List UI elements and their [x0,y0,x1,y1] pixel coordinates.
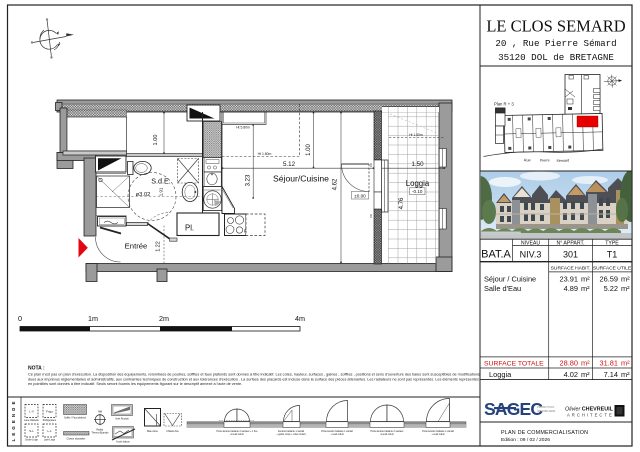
svg-text:PLAN DE COMMERCIALISATION: PLAN DE COMMERCIALISATION [501,430,588,436]
svg-text:Pl.: Pl. [185,224,194,233]
svg-text:-0.10: -0.10 [412,189,423,194]
svg-text:Sèche-Linge: Sèche-Linge [25,439,39,441]
svg-text:en pointillés sont donnés à ti: en pointillés sont donnés à titre indica… [28,382,242,386]
svg-text:F: F [244,229,247,234]
svg-text:Séjour/Cuisine: Séjour/Cuisine [273,174,329,184]
svg-text:T1: T1 [607,250,618,260]
svg-text:Porte-fenêtre battante 2 vanta: Porte-fenêtre battante 2 vantaux + 1 fix… [216,430,258,433]
svg-text:m²: m² [581,359,590,368]
svg-text:28.80: 28.80 [560,359,579,368]
svg-text:LE CLOS SEMARD: LE CLOS SEMARD [486,17,625,36]
svg-text:1m: 1m [88,314,98,323]
svg-text:à seuil réduit: à seuil réduit [380,433,393,436]
svg-text:Porte-fenêtre battante 1 vanta: Porte-fenêtre battante 1 vantail [422,430,454,433]
svg-text:1.22: 1.22 [156,241,162,252]
svg-text:Châssis fixe: Châssis fixe [166,431,179,433]
svg-text:Plan R + 3: Plan R + 3 [494,102,514,107]
svg-text:Séjour / Cuisine: Séjour / Cuisine [484,275,536,284]
svg-text:Fenêtre battante 1 vantail: Fenêtre battante 1 vantail [278,430,305,433]
svg-text:Entrée: Entrée [125,242,148,251]
svg-text:4.02: 4.02 [564,370,578,379]
svg-text:Rue: Rue [524,158,531,162]
svg-text:Sémard: Sémard [556,159,569,163]
svg-text:20 , Rue Pierre Sémard: 20 , Rue Pierre Sémard [495,38,616,49]
svg-text:NIVEAU: NIVEAU [521,240,541,246]
svg-text:m²: m² [621,284,630,293]
svg-text:Loggia: Loggia [406,179,430,188]
svg-text:±0.00: ±0.00 [354,193,366,198]
svg-text:S.d.E.: S.d.E. [151,177,171,186]
svg-text:m²: m² [581,275,590,284]
svg-text:Edition : 09 / 02 / 2026: Edition : 09 / 02 / 2026 [501,437,550,443]
svg-text:Volet Roulant: Volet Roulant [115,417,129,420]
svg-text:1.00: 1.00 [153,135,159,146]
svg-text:SURFACE HABIT.: SURFACE HABIT. [551,265,591,271]
svg-text:4m: 4m [295,314,305,323]
svg-text:VR: VR [369,163,373,167]
svg-text:Accès balcon: Accès balcon [116,441,130,444]
svg-text:TYPE: TYPE [605,240,619,246]
svg-text:4.76: 4.76 [399,197,405,209]
svg-text:m²: m² [621,359,630,368]
svg-text:4.89: 4.89 [564,284,578,293]
svg-text:BAT.A: BAT.A [481,249,511,261]
svg-text:Thermo-Epandre: Thermo-Epandre [91,432,109,435]
svg-text:+ seuil réduit: + seuil réduit [431,433,444,436]
svg-text:Loggia: Loggia [489,370,512,379]
svg-text:0: 0 [18,314,22,323]
svg-text:Soffite / Faux-plafond: Soffite / Faux-plafond [64,416,87,419]
svg-text:26.59: 26.59 [600,275,619,284]
svg-text:+ seuil réduit: + seuil réduit [330,433,343,436]
svg-text:VH: VH [98,410,102,414]
svg-text:dues aux imprévus réglementair: dues aux imprévus réglementaires et admi… [28,377,479,381]
svg-text:NOTA :: NOTA : [28,366,45,372]
svg-text:m²: m² [581,370,590,379]
svg-text:m²: m² [621,275,630,284]
svg-text:IMMOBILIERE: IMMOBILIERE [537,409,555,413]
svg-text:5.22: 5.22 [604,284,618,293]
svg-text:Lave-Vaisselle: Lave-Vaisselle [24,420,39,422]
svg-text:Frigo: Frigo [46,410,53,414]
svg-text:Ce plan n'est pas un plan d'ex: Ce plan n'est pas un plan d'exécution. L… [28,373,480,377]
svg-text:1.50: 1.50 [411,161,424,168]
svg-text:Radiat.: Radiat. [96,429,104,432]
svg-text:L E G E N D E: L E G E N D E [11,401,16,442]
svg-text:4.62: 4.62 [333,178,339,190]
svg-text:N° APPART.: N° APPART. [556,240,584,246]
svg-text:m²: m² [621,370,630,379]
svg-text:Pierre: Pierre [540,158,550,162]
svg-text:ARCHITECTE: ARCHITECTE [567,413,614,418]
svg-text:Lave-Linge: Lave-Linge [44,439,56,441]
svg-text:+ garde corps + volet roulant: + garde corps + volet roulant [276,433,306,436]
svg-text:Baie vitrée: Baie vitrée [147,430,159,433]
svg-text:Ht 1.80m: Ht 1.80m [409,133,423,137]
svg-text:301: 301 [563,250,578,260]
svg-text:L-V: L-V [29,410,34,414]
svg-text:à seuil réduit: à seuil réduit [230,433,243,436]
svg-text:SURFACE TOTALE: SURFACE TOTALE [484,360,544,367]
svg-text:Ht 1.80m: Ht 1.80m [258,152,272,156]
svg-text:Porte-fenêtre battante 1 vanta: Porte-fenêtre battante 1 vantail [321,430,353,433]
svg-text:L-L: L-L [47,429,52,433]
svg-text:35120 DOL de BRETAGNE: 35120 DOL de BRETAGNE [498,52,614,63]
svg-text:Réfrigérateur: Réfrigérateur [43,419,57,422]
svg-text:3.23: 3.23 [246,174,252,186]
svg-text:2m: 2m [159,314,169,323]
svg-text:23.91: 23.91 [560,275,579,284]
svg-text:31.81: 31.81 [600,359,619,368]
svg-text:VR: VR [369,214,373,218]
svg-text:1.00: 1.00 [306,144,312,156]
svg-text:Salle d'Eau: Salle d'Eau [484,284,521,293]
svg-text:1.91: 1.91 [159,187,164,196]
svg-text:Ht 5.80m: Ht 5.80m [236,126,250,130]
svg-text:ø3.02: ø3.02 [136,192,151,198]
svg-text:7.14: 7.14 [604,370,618,379]
svg-text:Porte-fenêtre battante 2 vanta: Porte-fenêtre battante 2 vantaux [371,430,405,433]
svg-text:Cloison séparative: Cloison séparative [67,437,87,440]
svg-text:S-L: S-L [29,429,34,433]
svg-text:NIV.3: NIV.3 [520,250,542,260]
svg-text:SURFACE UTILE: SURFACE UTILE [593,265,632,271]
svg-text:5.12: 5.12 [283,161,296,168]
svg-text:m²: m² [581,284,590,293]
